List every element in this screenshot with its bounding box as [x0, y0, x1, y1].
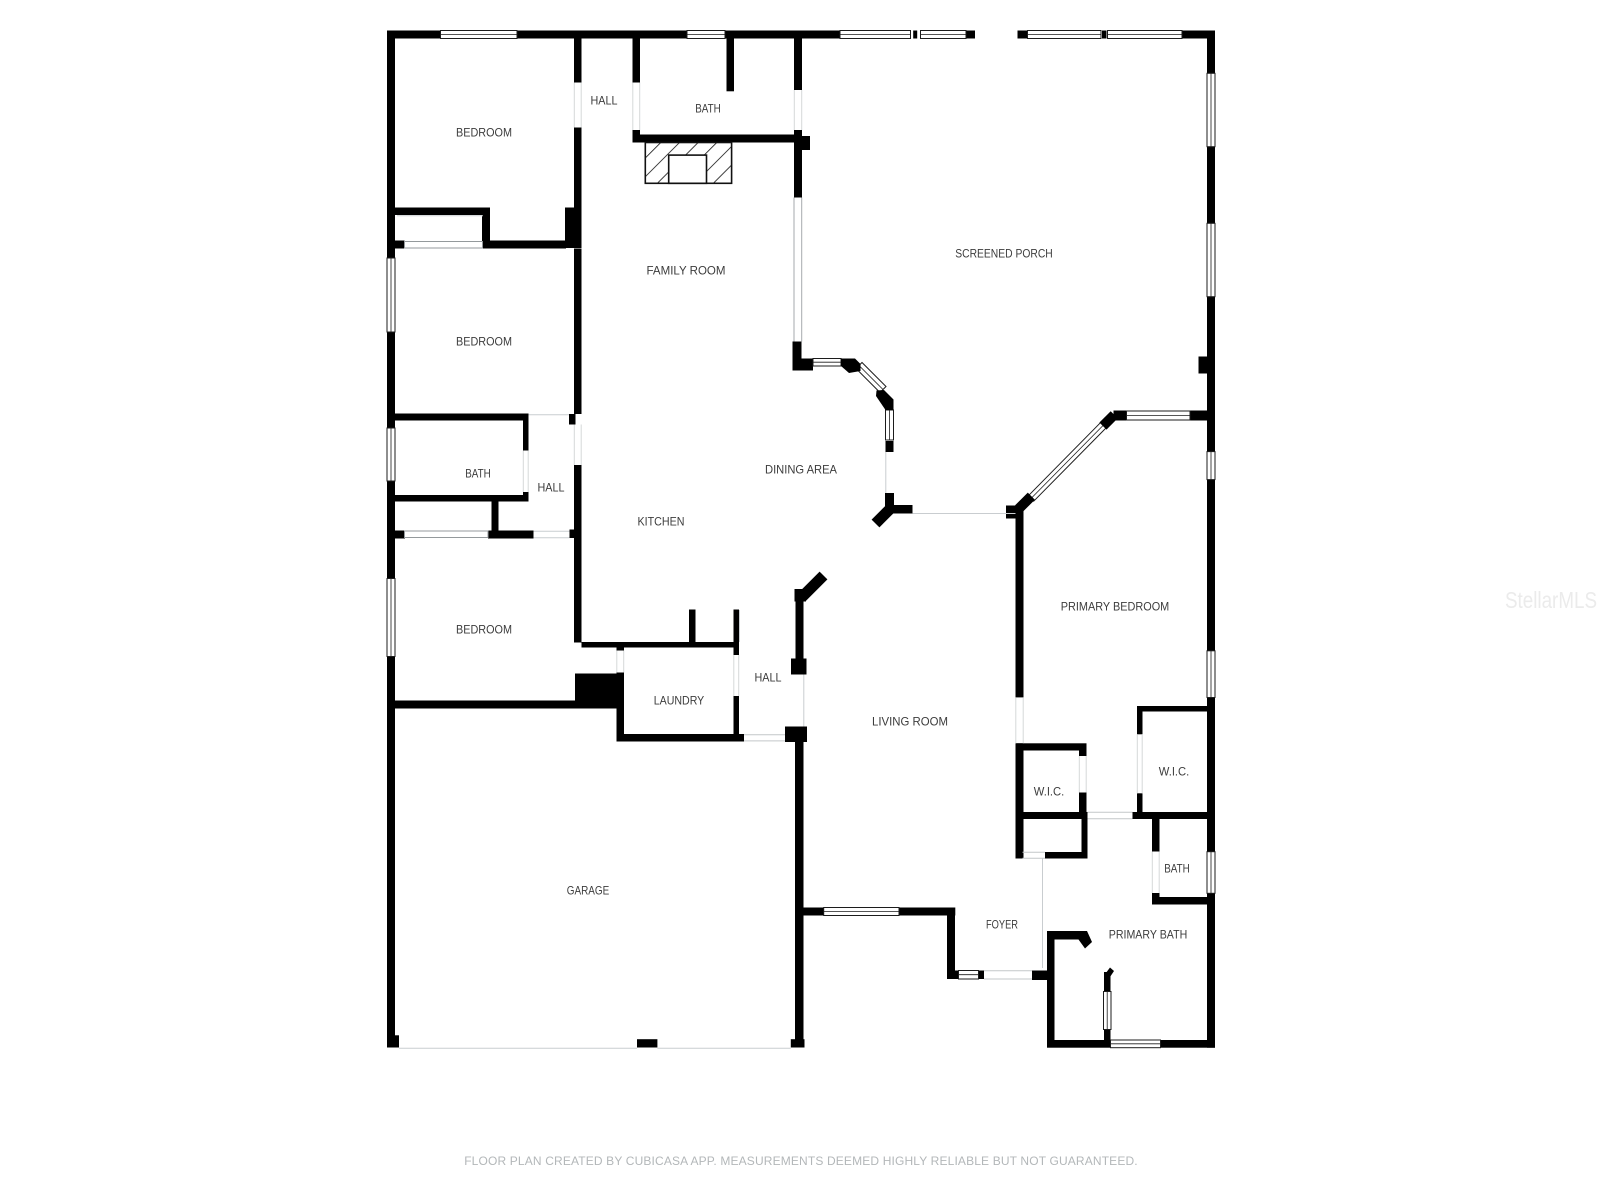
svg-text:StellarMLS: StellarMLS: [1505, 587, 1597, 613]
svg-text:LIVING ROOM: LIVING ROOM: [872, 715, 948, 729]
svg-text:FAMILY ROOM: FAMILY ROOM: [647, 264, 726, 278]
svg-text:PRIMARY BEDROOM: PRIMARY BEDROOM: [1061, 600, 1170, 614]
svg-text:PRIMARY BATH: PRIMARY BATH: [1109, 928, 1188, 942]
svg-text:FLOOR PLAN CREATED BY CUBICASA: FLOOR PLAN CREATED BY CUBICASA APP. MEAS…: [464, 1154, 1138, 1168]
svg-text:BEDROOM: BEDROOM: [456, 335, 512, 349]
svg-text:HALL: HALL: [591, 94, 618, 108]
svg-text:FOYER: FOYER: [986, 918, 1018, 932]
svg-text:W.I.C.: W.I.C.: [1159, 765, 1190, 779]
svg-text:SCREENED PORCH: SCREENED PORCH: [955, 247, 1053, 261]
svg-text:BATH: BATH: [465, 467, 491, 481]
svg-text:LAUNDRY: LAUNDRY: [654, 694, 705, 708]
svg-text:HALL: HALL: [755, 671, 782, 685]
svg-text:DINING AREA: DINING AREA: [765, 463, 837, 477]
svg-text:BATH: BATH: [695, 102, 721, 116]
svg-text:KITCHEN: KITCHEN: [638, 515, 685, 529]
svg-text:HALL: HALL: [538, 481, 565, 495]
svg-text:BEDROOM: BEDROOM: [456, 623, 512, 637]
svg-text:GARAGE: GARAGE: [567, 884, 610, 898]
svg-text:BEDROOM: BEDROOM: [456, 126, 512, 140]
svg-text:BATH: BATH: [1164, 862, 1190, 876]
svg-text:W.I.C.: W.I.C.: [1034, 785, 1065, 799]
